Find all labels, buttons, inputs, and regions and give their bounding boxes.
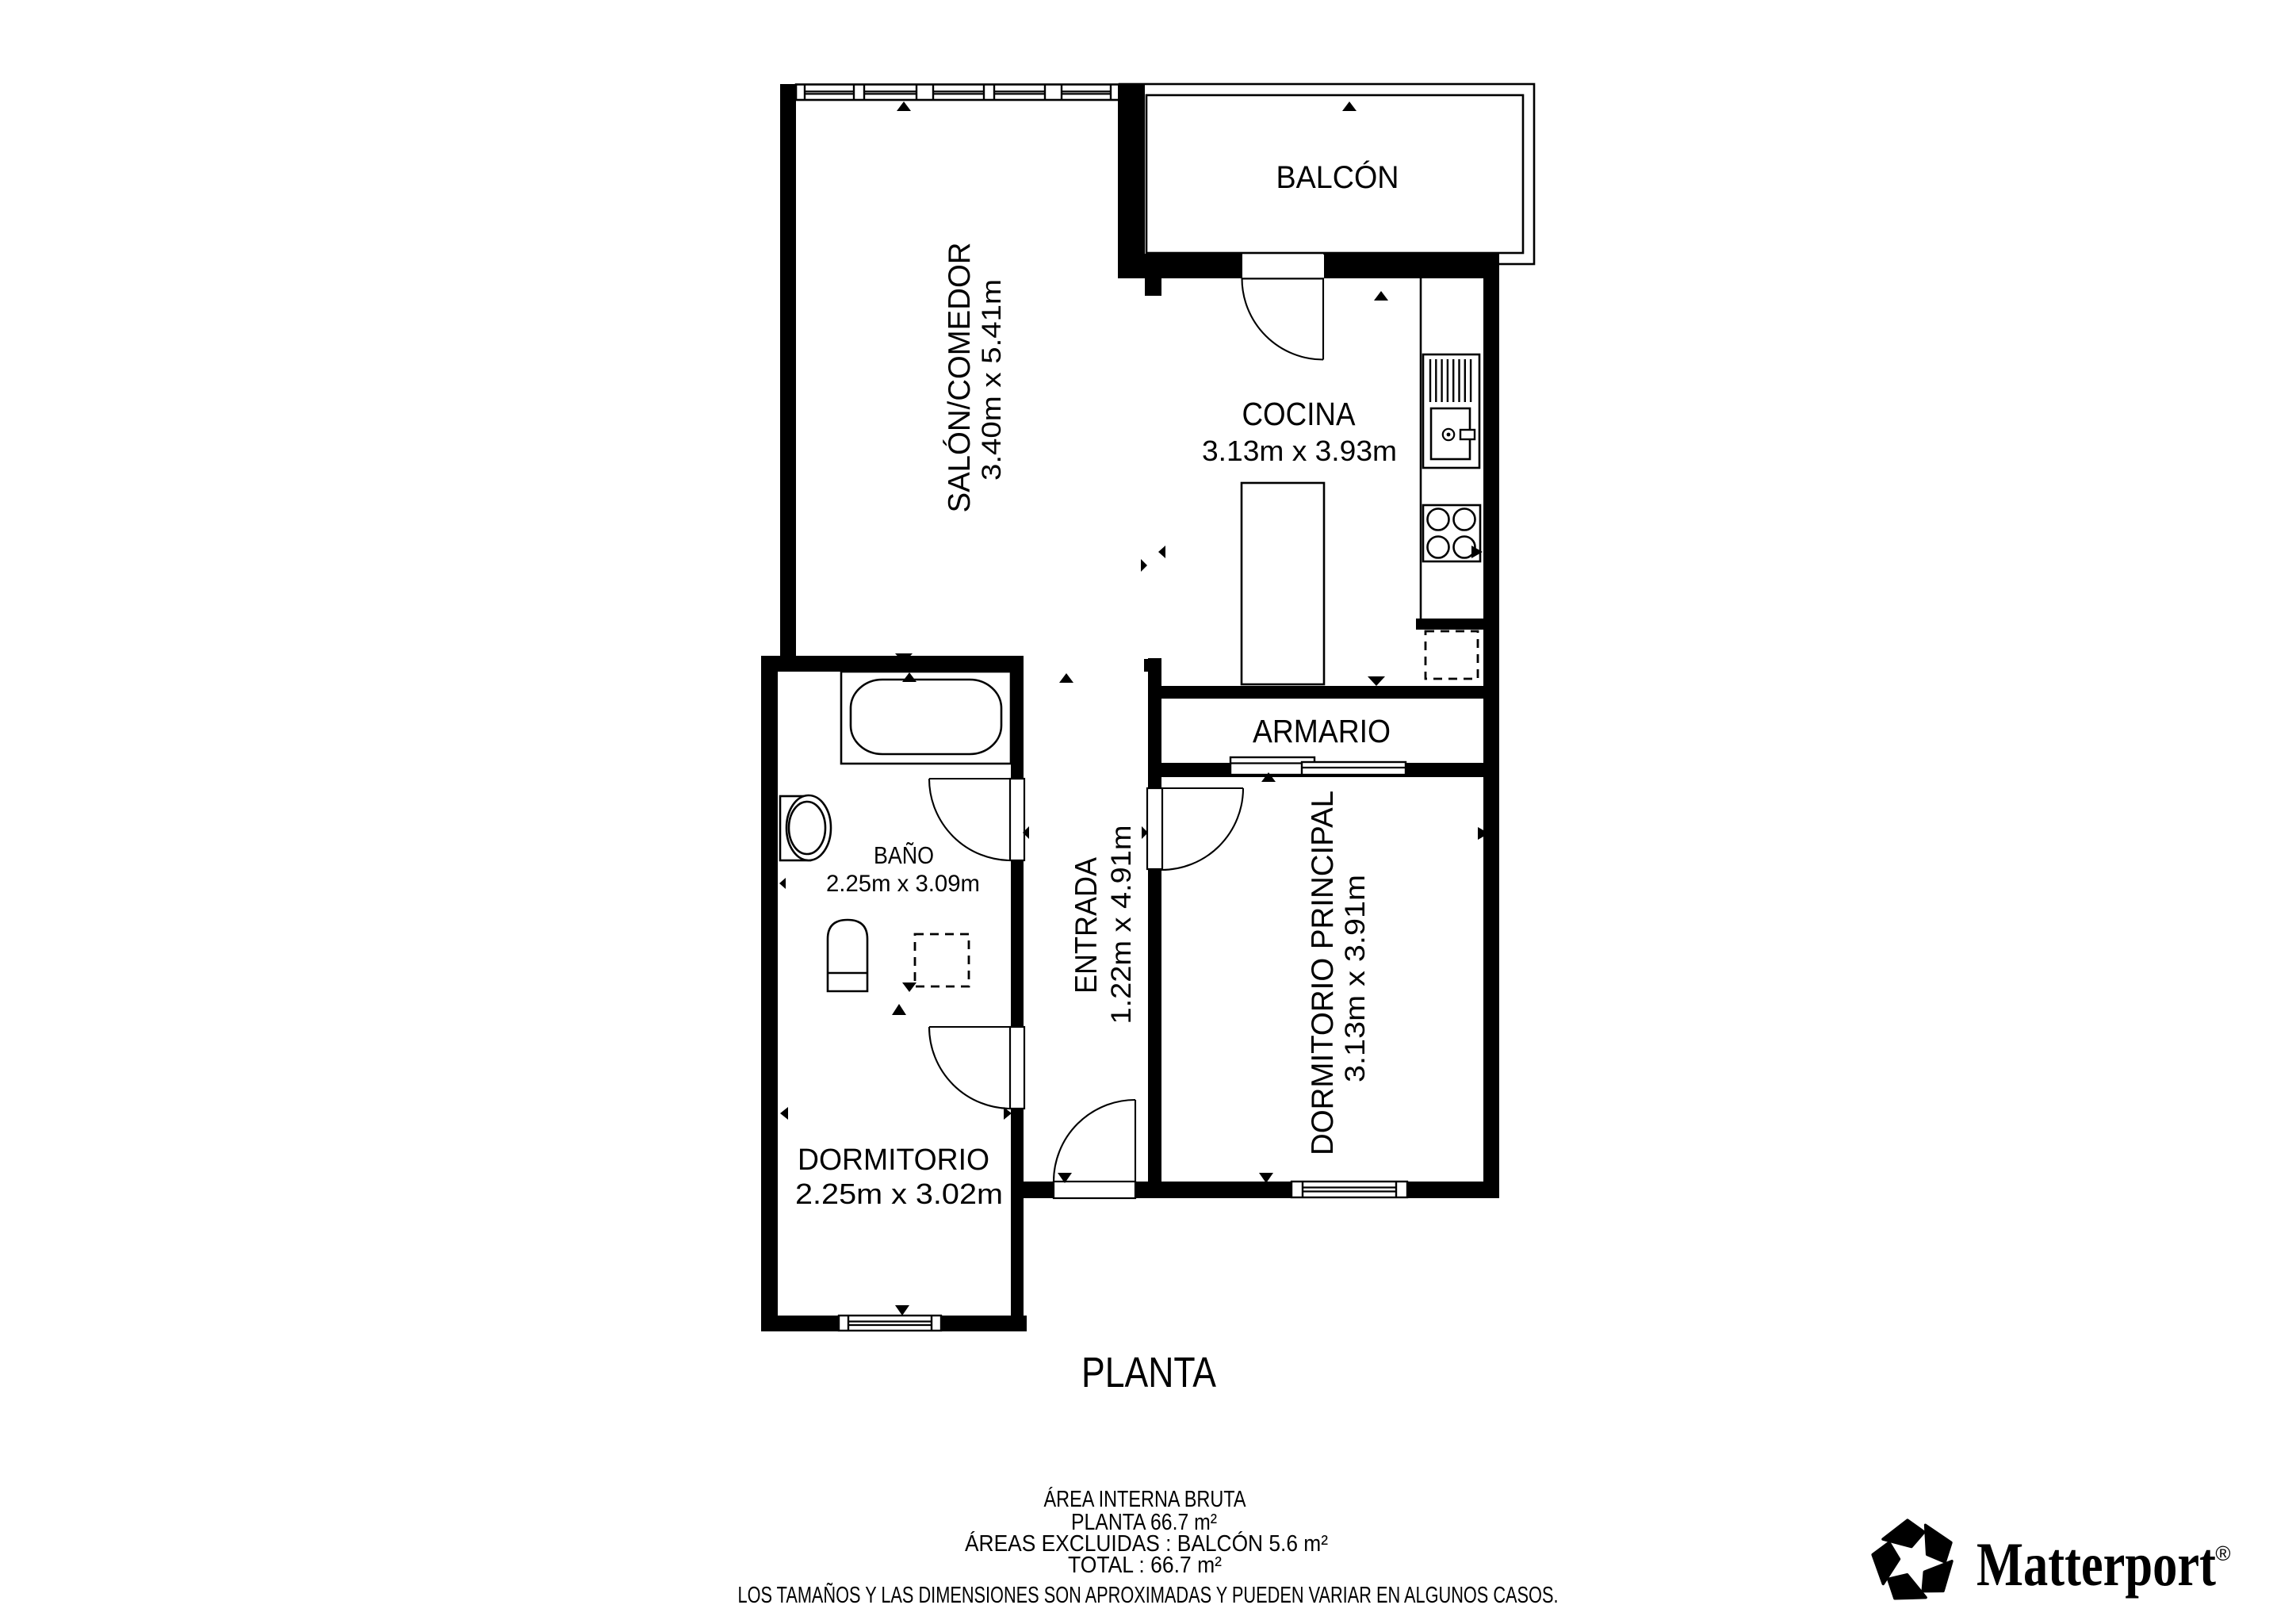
svg-text:3.13m x 3.93m: 3.13m x 3.93m	[1202, 435, 1397, 467]
svg-text:BAÑO: BAÑO	[874, 841, 934, 869]
svg-text:Matterport: Matterport	[1976, 1530, 2216, 1599]
svg-text:2.25m x 3.09m: 2.25m x 3.09m	[826, 871, 980, 897]
svg-text:ARMARIO: ARMARIO	[1253, 713, 1391, 749]
svg-text:3.13m x 3.91m: 3.13m x 3.91m	[1340, 875, 1371, 1082]
svg-text:PLANTA: PLANTA	[1081, 1349, 1216, 1396]
svg-text:3.40m x 5.41m: 3.40m x 5.41m	[977, 279, 1007, 481]
svg-text:ÁREA INTERNA BRUTA: ÁREA INTERNA BRUTA	[1044, 1487, 1246, 1512]
svg-text:ENTRADA: ENTRADA	[1070, 857, 1104, 994]
svg-text:®: ®	[2215, 1542, 2230, 1565]
svg-text:SALÓN/COMEDOR: SALÓN/COMEDOR	[943, 243, 977, 513]
svg-text:1.22m x 4.91m: 1.22m x 4.91m	[1106, 825, 1137, 1025]
svg-text:TOTAL : 66.7 m²: TOTAL : 66.7 m²	[1068, 1553, 1222, 1578]
svg-text:LOS TAMAÑOS Y LAS DIMENSIONES: LOS TAMAÑOS Y LAS DIMENSIONES SON APROXI…	[738, 1581, 1559, 1608]
svg-text:2.25m x 3.02m: 2.25m x 3.02m	[795, 1178, 1003, 1210]
svg-text:COCINA: COCINA	[1242, 396, 1357, 432]
svg-text:DORMITORIO PRINCIPAL: DORMITORIO PRINCIPAL	[1306, 791, 1340, 1155]
svg-text:BALCÓN: BALCÓN	[1276, 159, 1399, 195]
svg-text:DORMITORIO: DORMITORIO	[798, 1143, 989, 1177]
